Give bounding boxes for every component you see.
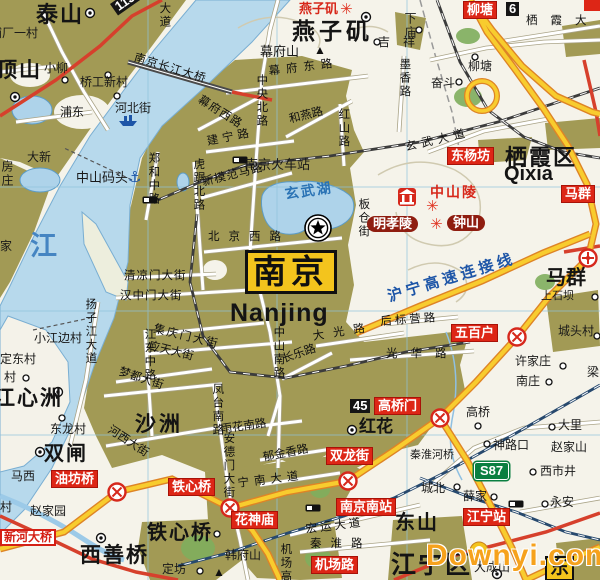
town-label: 燕子矶 [292,19,373,44]
anchor-icon: ⚓ [128,170,141,186]
town-label: 铁心桥 [147,523,213,545]
road-label: 宏运大道 [305,517,364,536]
nanjing-city-map: 泰山浦厂一村顶山小柳桥工新村浦东河北街大新房庄家中山码头⚓江南京长江大桥大道11… [0,0,600,580]
town-label: 家 [0,240,12,253]
station-label: 南京南站 [337,499,395,515]
town-label: 神路口 [493,439,529,452]
town-label: 房庄 [0,160,13,188]
road-label: 和燕路 [288,106,324,126]
town-label: 梁 [587,366,599,379]
district-label-latin: Qixia [504,164,553,186]
road-label: 扬子江大道 [84,298,96,366]
town-label: 许家庄 [515,355,551,368]
town-label: 赵家园 [30,505,66,518]
road-label: 长乐路 [281,343,318,366]
road-label: 汉中门大街 [120,290,183,302]
town-label: 定东村 [0,353,36,366]
interchange-label: 柳塘 [464,2,496,18]
town-label: 泰山 [36,3,84,27]
station-label: 江宁站 [464,509,509,525]
interchange-label: 机场路 [312,557,357,573]
road-label: 幕府东路 [268,57,339,78]
interchange-label: 油坊桥 [52,471,97,487]
road-label: 红山路 [337,108,349,149]
route-shield: 6 [506,2,519,16]
town-label: 定坊 [162,563,186,576]
town-label: 顶山 [0,60,42,83]
scenic-label: 钟山 [447,215,485,231]
town-label: 上石坝 [541,291,574,303]
town-label: 村 [0,501,12,514]
road-label: 中山南路 [272,326,284,380]
town-label: 永安 [550,496,574,509]
road-label: 板仓街 [357,198,369,239]
mountain-label: 韩府山 [225,549,261,562]
town-label: 奋斗 [431,77,455,90]
road-label: 机场高速 [279,543,291,580]
town-label: 薛家 [463,490,487,503]
town-label: 东龙村 [50,423,86,436]
town-label: 东山 [395,513,439,535]
route-shield: 113 [110,0,140,15]
town-label: 小江边村 [34,332,82,345]
town-label: 双闸 [44,444,88,466]
town-label: 大新 [27,151,51,164]
water-label: 江 [30,232,57,261]
scenic-label: 明孝陵 [367,216,418,232]
town-label: 马群 [546,268,586,290]
town-label: 城头村 [558,325,594,338]
interchange-label: 花神庙 [232,512,277,528]
town-label: 红花 [359,418,393,436]
road-label: 幕府西路 [195,94,244,131]
road-label: 北京西路 [208,231,290,243]
town-label: 村 [4,371,16,384]
town-label: 西市井 [540,465,576,478]
bridge-label: 秦淮河桥 [410,450,454,462]
poi-label: 中山码头 [76,171,128,185]
scenic-icon: ✳ [426,199,439,215]
road-label: 梦都大街 [117,366,165,392]
interchange-label: 东杨坊 [448,148,493,164]
scenic-icon: ✳ [430,217,443,233]
town-label: 浦厂一村 [0,27,38,40]
town-label: 西善桥 [80,545,149,568]
town-label: 大里 [558,419,582,432]
town-label: 河北街 [115,102,151,115]
town-label: 下庙 [403,12,416,40]
town-label: 赵家山 [551,441,587,454]
road-label: 新模范马路 [201,162,265,189]
interchange-label: 高桥门 [375,398,420,414]
town-label: 沙洲 [135,414,183,437]
town-label: 城北 [421,482,445,495]
expressway-label: 沪宁高速连接线 [386,251,518,305]
bridge-label: 新河大桥 [0,529,56,546]
labels-layer: 泰山浦厂一村顶山小柳桥工新村浦东河北街大新房庄家中山码头⚓江南京长江大桥大道11… [0,0,600,580]
road-label: 郑和中路 [147,152,159,206]
road-label: 光华路 [386,348,460,360]
water-label: 玄武湖 [284,180,334,202]
town-label: 南庄 [516,375,540,388]
road-label: 郁金香路 [262,443,310,464]
peak-icon: ▲ [314,44,326,57]
road-label: 中央北路 [255,74,267,128]
watermark: Downyi.com [426,540,600,572]
bridge-label: 南京长江大桥 [132,52,207,86]
road-label: 秦淮路 [310,538,372,550]
city-label: 南京 [245,250,337,294]
town-label: 小柳 [44,62,68,75]
road-label: 宁南大道 [237,470,304,490]
road-label: 建宁路 [206,127,254,148]
road-label: 安德门大街 [222,432,234,500]
town-label: 江心洲 [0,388,63,411]
interchange-label: 五百户 [452,325,497,341]
town-label: 桥工新村 [80,76,128,89]
road-label: 后标营路 [380,312,439,328]
scenic-label: 燕子矶 [299,2,338,16]
mountain-label: 幕府山 [260,45,299,59]
interchange-label: 双龙街 [327,448,372,464]
city-label-latin: Nanjing [230,300,329,327]
route-shield: 45 [350,399,370,413]
interchange-label: 马群 [562,186,594,202]
road-label: 虎踞北路 [192,158,204,212]
town-label: 马西 [11,470,35,483]
road-label: 墨香路 [398,58,410,99]
interchange-label: 铁心桥 [169,479,214,495]
town-label: 柳塘 [468,60,492,73]
town-label: 高桥 [466,406,490,419]
road-label: 栖霞大道 [526,15,600,27]
road-label: 清凉门大街 [124,270,187,282]
route-shield: S87 [474,462,509,480]
road-label: 大道 [158,2,170,29]
peak-icon: ▲ [213,566,225,579]
scenic-icon: ✳ [340,2,353,18]
town-label: 浦东 [60,106,84,119]
